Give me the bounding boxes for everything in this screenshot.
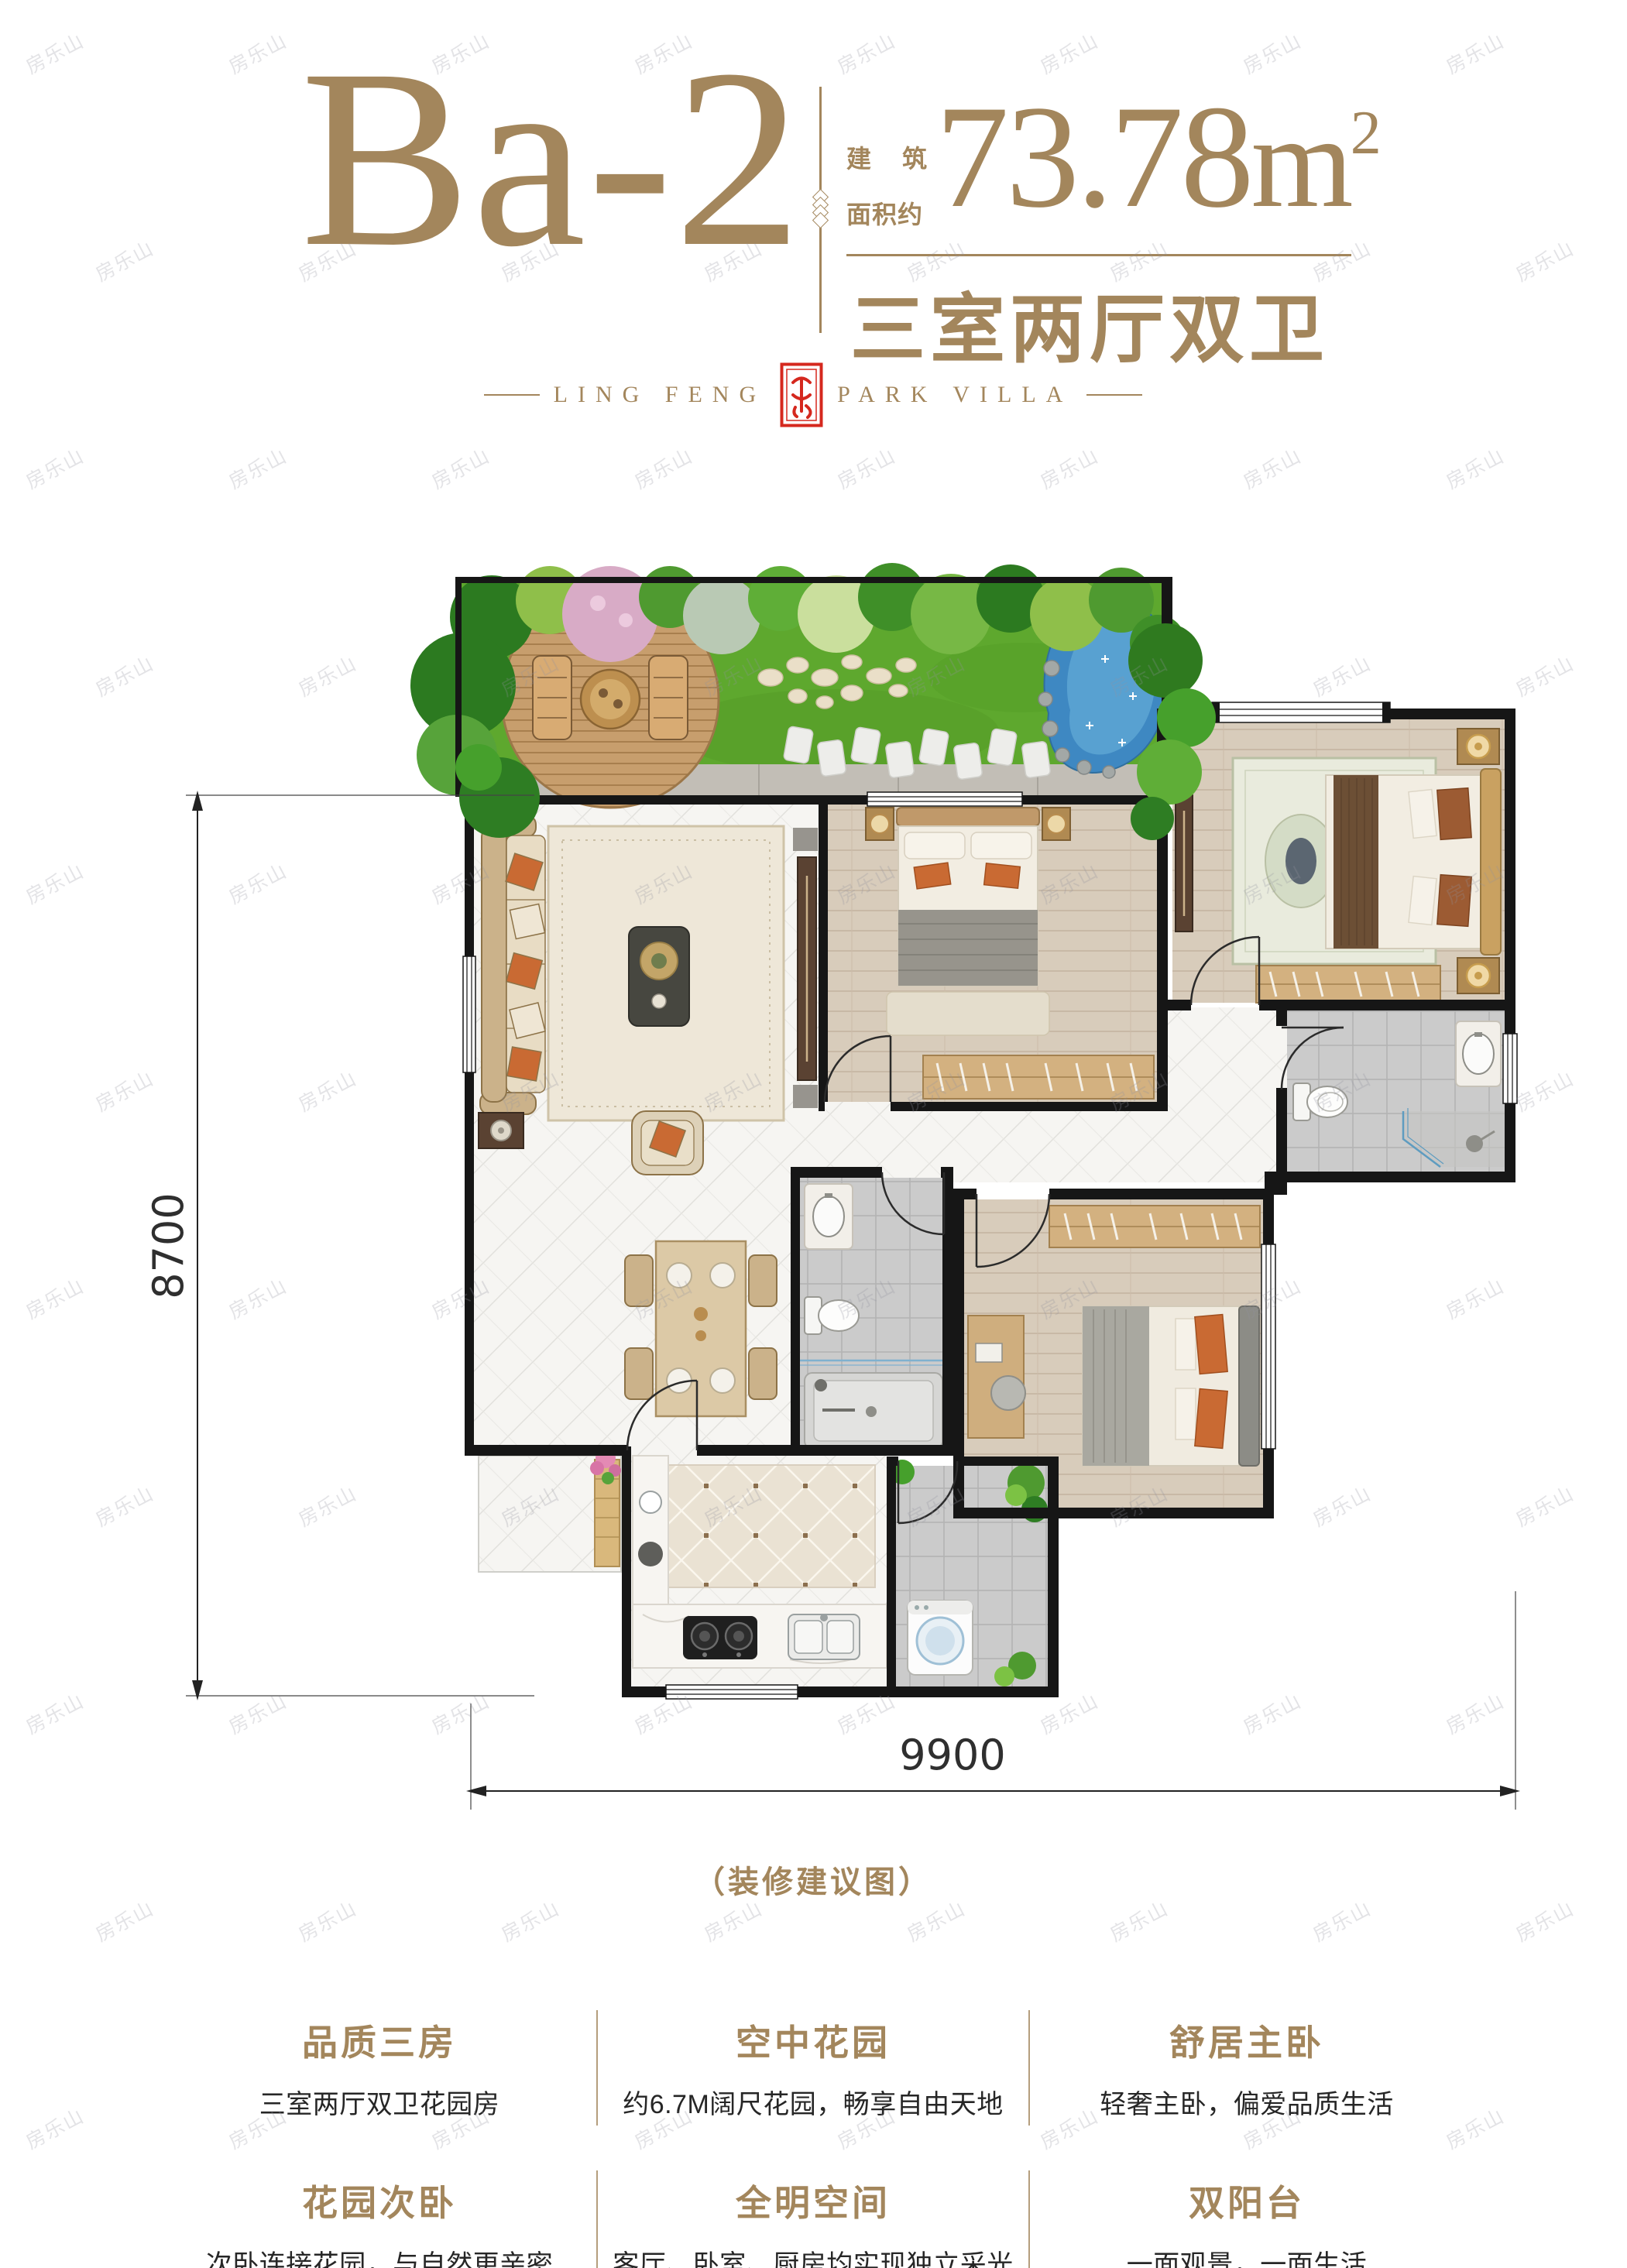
watermark: 房乐山 [90, 233, 158, 287]
watermark: 房乐山 [832, 441, 900, 495]
window-living-left [463, 956, 475, 1072]
bay-window-bedroom3 [1261, 1244, 1275, 1449]
watermark: 房乐山 [223, 26, 291, 80]
watermark: 房乐山 [1237, 26, 1306, 80]
brand-text-right: PARK VILLA [837, 382, 1073, 408]
brand-row: LING FENG PARK VILLA [480, 358, 1146, 432]
feature-desc: 约6.7M阔尺花园，畅享自由天地 [609, 2083, 1018, 2121]
feature-title: 全明空间 [609, 2175, 1018, 2226]
feature-title: 双阳台 [1041, 2175, 1453, 2226]
feature-title: 空中花园 [609, 2015, 1018, 2066]
watermark: 房乐山 [1307, 1893, 1375, 1947]
watermark: 房乐山 [20, 26, 88, 80]
kitchen [633, 1456, 887, 1668]
stove [683, 1616, 757, 1659]
feature-desc: 客厅、卧室、厨房均实现独立采光 [609, 2243, 1018, 2268]
feature-desc: 三室两厅双卫花园房 [173, 2083, 585, 2121]
watermark: 房乐山 [1237, 441, 1306, 495]
wardrobe-master [1256, 966, 1440, 1003]
brand-line-left [484, 394, 540, 396]
watermark: 房乐山 [293, 1893, 361, 1947]
plan-caption: （装修建议图） [426, 1857, 1200, 1902]
features-grid: 品质三房 三室两厅双卫花园房 空中花园 约6.7M阔尺花园，畅享自由天地 舒居主… [163, 2010, 1464, 2268]
wardrobe-2 [923, 1055, 1154, 1099]
plan-group [410, 563, 1517, 1699]
brand-text-left: LING FENG [554, 382, 767, 408]
washing-machine [908, 1601, 973, 1675]
feature-item: 品质三房 三室两厅双卫花园房 [163, 2010, 596, 2126]
diamond-ornament-icon [812, 195, 829, 226]
watermark: 房乐山 [1510, 233, 1578, 287]
armchair [632, 1111, 703, 1175]
feature-desc: 次卧连接花园，与自然更亲密 [173, 2243, 585, 2268]
watermark: 房乐山 [1510, 1893, 1578, 1947]
watermark: 房乐山 [629, 441, 697, 495]
feature-desc: 一面观景，一面生活 [1041, 2243, 1453, 2268]
window-kitchen [666, 1685, 798, 1699]
window-master-bath [1503, 1034, 1517, 1103]
floor-plan: 8700 9900 [70, 561, 1588, 1893]
watermark: 房乐山 [90, 1893, 158, 1947]
brand-seal-icon [780, 362, 823, 427]
page: Ba-2 建筑 面积约 73.78m2 三室两厅双卫 LING FENG PAR… [0, 0, 1627, 2268]
watermark: 房乐山 [20, 2101, 88, 2155]
desk [968, 1316, 1025, 1438]
watermark: 房乐山 [20, 441, 88, 495]
brand-line-right [1086, 394, 1142, 396]
flower-shelf [590, 1448, 621, 1566]
feature-item: 花园次卧 次卧连接花园，与自然更亲密 [163, 2170, 596, 2268]
feature-title: 品质三房 [173, 2015, 585, 2066]
feature-title: 花园次卧 [173, 2175, 585, 2226]
watermark: 房乐山 [1440, 441, 1509, 495]
coffee-table [629, 927, 689, 1026]
feature-item: 双阳台 一面观景，一面生活 [1030, 2170, 1464, 2268]
watermark: 房乐山 [1035, 441, 1103, 495]
dim-left-label: 8700 [144, 1192, 193, 1299]
watermark: 房乐山 [223, 441, 291, 495]
watermark: 房乐山 [1035, 26, 1103, 80]
bay-window-master [1212, 702, 1390, 722]
wardrobe-3 [1049, 1206, 1260, 1247]
sofa [480, 815, 545, 1114]
gold-rule [846, 254, 1351, 256]
area-label: 建筑 面积约 [846, 139, 927, 231]
kitchen-sink [788, 1614, 860, 1659]
area-value: 73.78m2 [935, 84, 1382, 231]
window-bedroom2 [867, 792, 1022, 806]
watermark: 房乐山 [1440, 26, 1509, 80]
feature-item: 空中花园 约6.7M阔尺花园，畅享自由天地 [596, 2010, 1030, 2126]
dim-bottom-label: 9900 [899, 1731, 1005, 1779]
watermark: 房乐山 [832, 26, 900, 80]
feature-desc: 轻奢主卧，偏爱品质生活 [1041, 2083, 1453, 2121]
watermark: 房乐山 [426, 441, 494, 495]
unit-code: Ba-2 [300, 31, 803, 287]
feature-item: 舒居主卧 轻奢主卧，偏爱品质生活 [1030, 2010, 1464, 2126]
floor-plan-svg: 8700 9900 [70, 561, 1588, 1893]
feature-item: 全明空间 客厅、卧室、厨房均实现独立采光 [596, 2170, 1030, 2268]
feature-title: 舒居主卧 [1041, 2015, 1453, 2066]
